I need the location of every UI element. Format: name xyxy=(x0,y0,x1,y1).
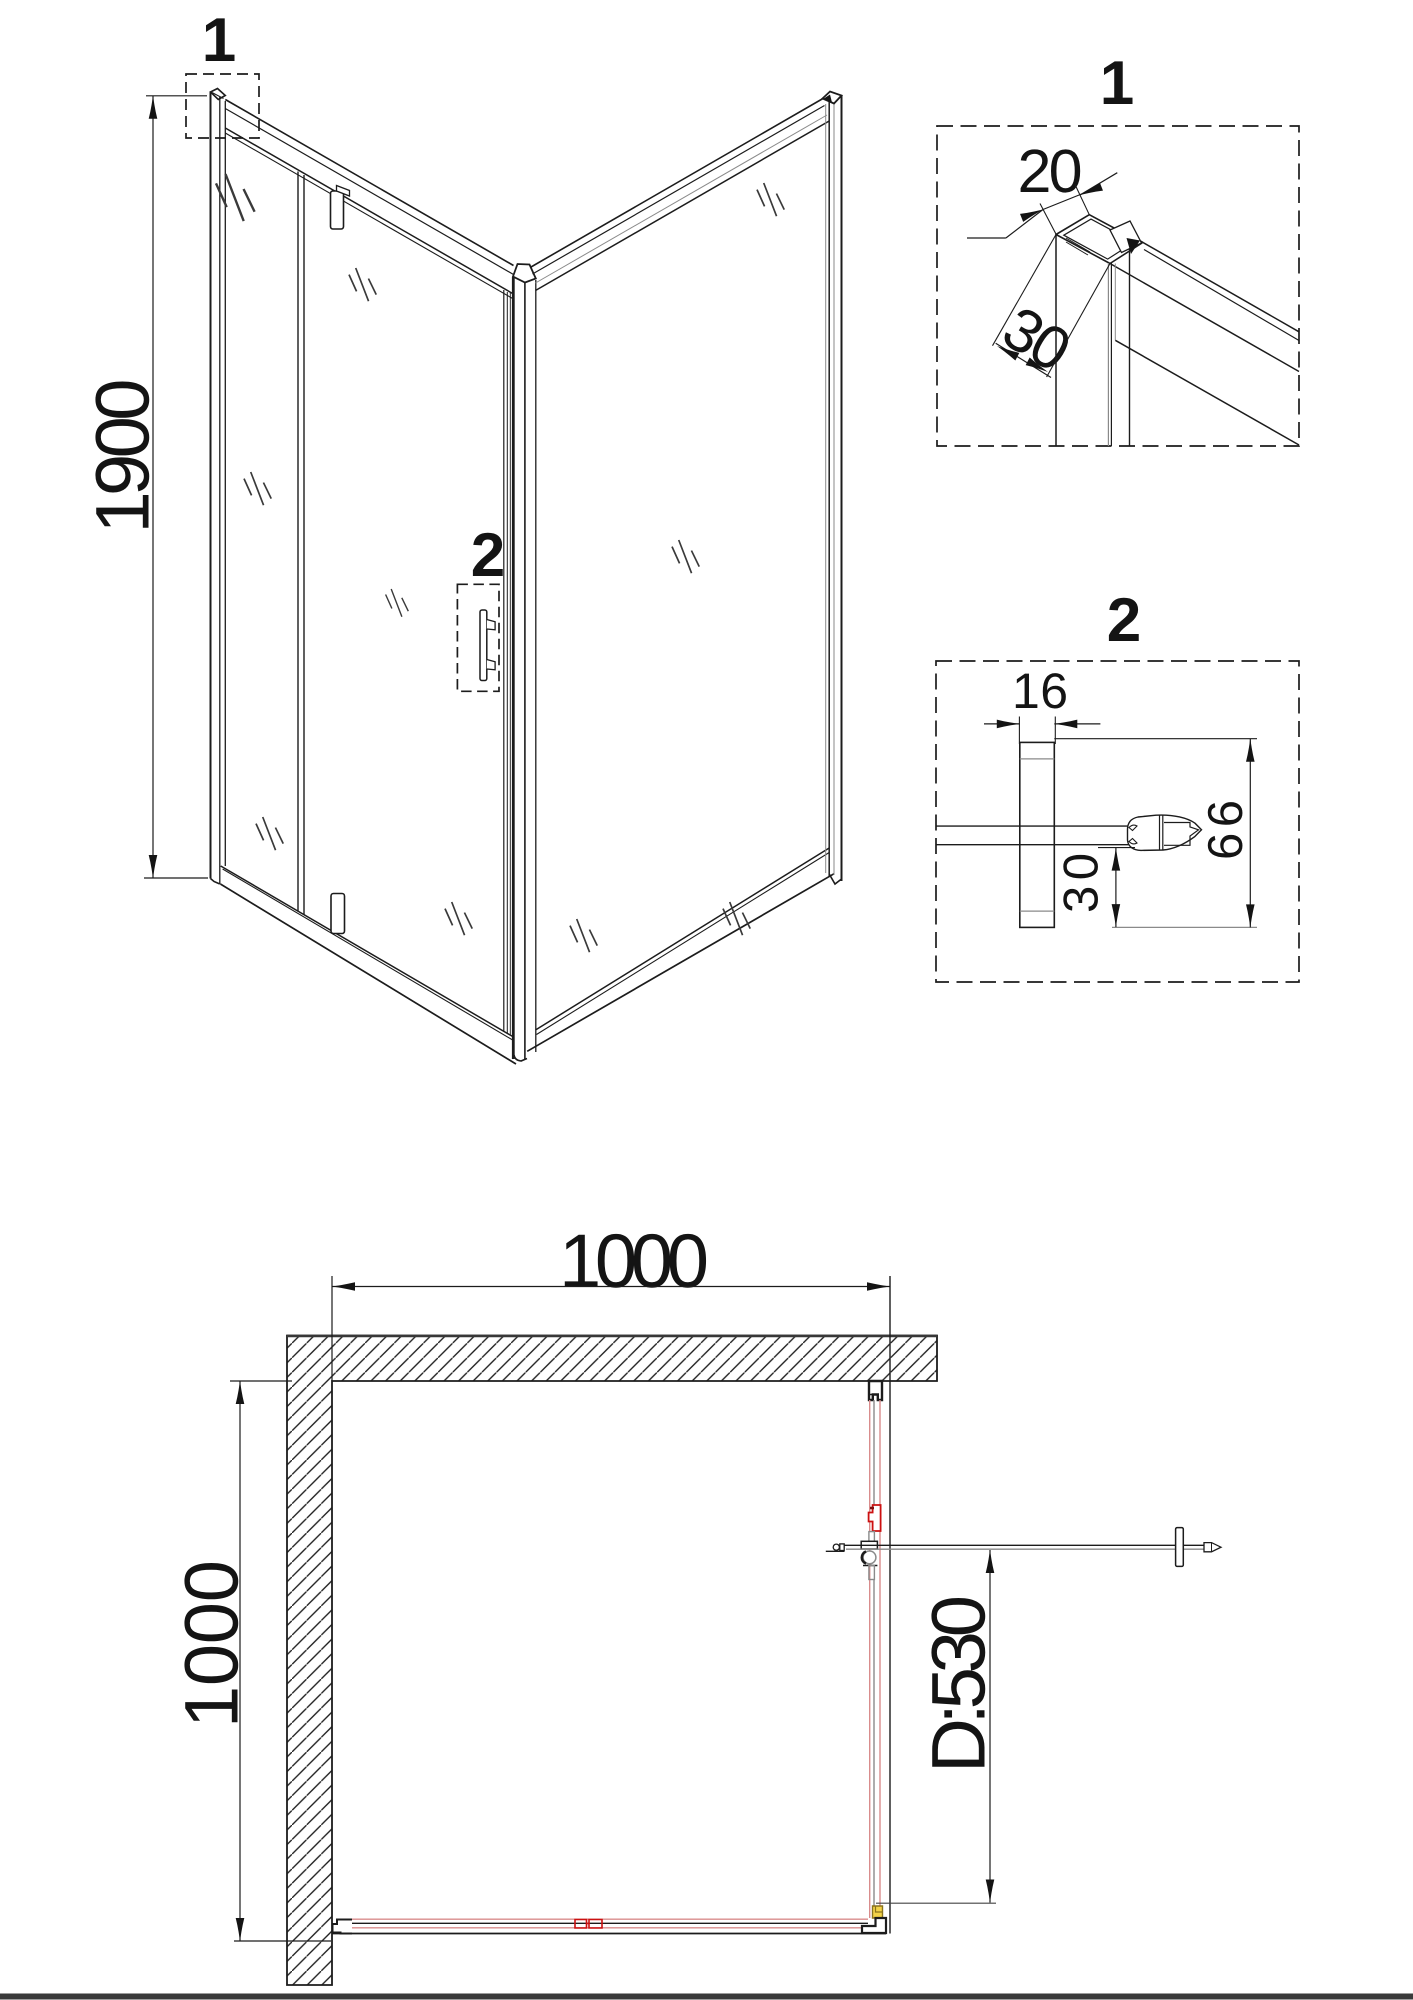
svg-text:D:530: D:530 xyxy=(917,1595,1002,1773)
svg-text:1: 1 xyxy=(202,6,236,75)
svg-text:1: 1 xyxy=(1100,49,1134,118)
svg-text:1000: 1000 xyxy=(170,1560,255,1728)
svg-text:2: 2 xyxy=(1107,586,1141,655)
svg-text:20: 20 xyxy=(1018,137,1083,205)
svg-text:1900: 1900 xyxy=(81,379,166,534)
svg-text:1000: 1000 xyxy=(559,1219,709,1304)
svg-text:16: 16 xyxy=(1012,663,1068,719)
svg-text:2: 2 xyxy=(471,521,505,590)
